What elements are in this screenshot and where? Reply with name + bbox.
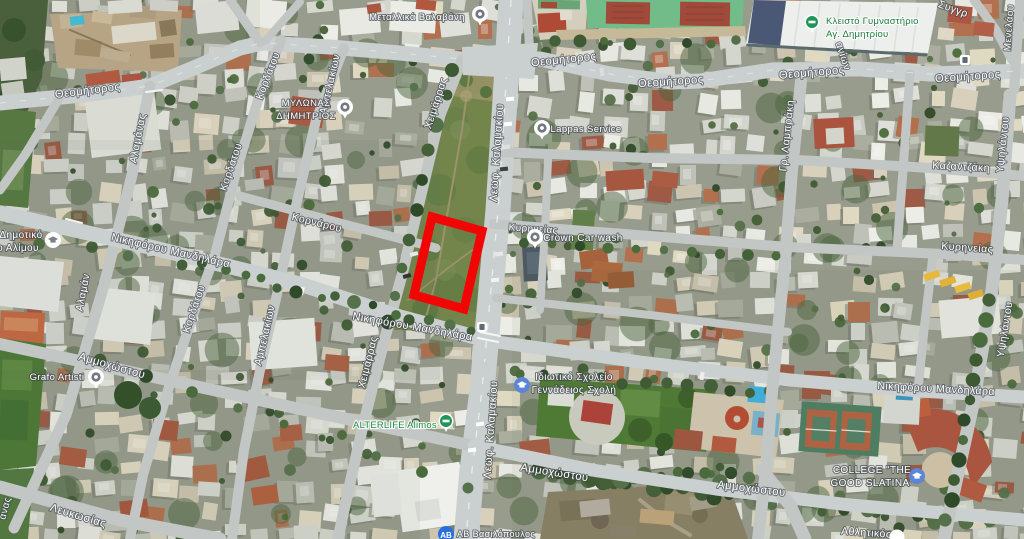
svg-text:Μεταλλικά Βαλαβάνη: Μεταλλικά Βαλαβάνη <box>369 12 465 23</box>
svg-text:Grafo Artisti: Grafo Artisti <box>30 372 85 383</box>
svg-text:AB: AB <box>440 531 452 539</box>
svg-text:Κλειστό Γυμναστήριο: Κλειστό Γυμναστήριο <box>826 16 919 27</box>
svg-text:Lappas Service: Lappas Service <box>550 124 621 135</box>
svg-text:Αγ. Δημητρίου: Αγ. Δημητρίου <box>826 29 888 40</box>
svg-text:ΔΗΜΗΤΡΙΟΣ: ΔΗΜΗΤΡΙΟΣ <box>276 111 336 122</box>
svg-text:ΑΒ Βασιλόπουλος: ΑΒ Βασιλόπουλος <box>457 529 535 539</box>
svg-text:ALTERLIFE Alimos: ALTERLIFE Alimos <box>353 420 437 431</box>
svg-text:Γεννάδειος Σχολή: Γεννάδειος Σχολή <box>532 384 617 396</box>
svg-text:COLLEGE "THE: COLLEGE "THE <box>833 465 911 476</box>
svg-text:GOOD SLATINA": GOOD SLATINA" <box>830 478 913 489</box>
svg-text:ο Αλίμου: ο Αλίμου <box>0 242 39 254</box>
svg-text:Αθλητικός: Αθλητικός <box>841 525 892 539</box>
svg-text:Δημοτικό: Δημοτικό <box>0 229 43 241</box>
svg-text:Ιδιωτικό Σχολείο: Ιδιωτικό Σχολείο <box>535 371 613 383</box>
svg-text:ΜΥΛΩΝΑΣ: ΜΥΛΩΝΑΣ <box>282 98 331 109</box>
svg-text:Crown Car wash: Crown Car wash <box>543 233 623 244</box>
